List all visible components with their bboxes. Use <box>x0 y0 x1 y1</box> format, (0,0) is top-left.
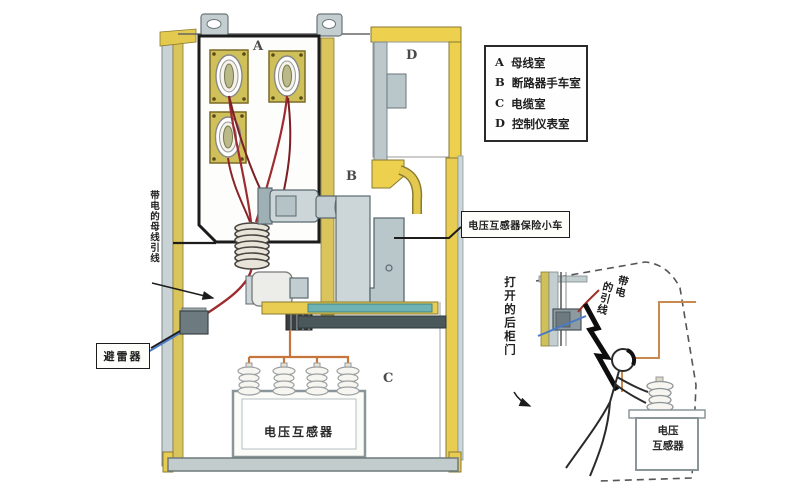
voltage-transformer-label: 电压互感器 <box>246 423 352 440</box>
legend-item-c: C电缆室 <box>495 96 577 112</box>
vt-fuse-cart-callout: 电压互感器保险小车 <box>461 211 570 238</box>
inset-voltage-transformer-label: 电压 互感器 <box>640 424 696 454</box>
opened-rear-door-label: 打开的后柜门 <box>502 276 518 396</box>
arrester-callout: 避雷器 <box>96 343 150 369</box>
compartment-a-letter: A <box>253 39 263 54</box>
legend-item-d: D控制仪表室 <box>495 116 577 132</box>
live-busbar-lead-label: 带电的母线引线 <box>146 190 160 294</box>
partition-a-b <box>321 38 334 315</box>
cabinet-left-wall <box>160 29 196 466</box>
lifting-lug-left <box>201 14 228 36</box>
vt-fuse-cart <box>370 160 417 304</box>
compartment-d-letter: D <box>406 48 417 63</box>
cabinet-right-wall <box>440 156 463 460</box>
lifting-lug-right <box>317 14 342 36</box>
compartment-b-letter: B <box>346 169 357 184</box>
busbar-insulator-2 <box>269 51 305 102</box>
surge-arrester <box>180 308 208 334</box>
handcart-frame <box>336 196 370 304</box>
compartment-c-letter: C <box>383 371 393 386</box>
breaker-lower-pole <box>246 272 308 306</box>
cable-room-wires <box>249 330 349 369</box>
legend-item-b: B断路器手车室 <box>495 75 577 91</box>
legend: A母线室 B断路器手车室 C电缆室 D控制仪表室 <box>484 45 588 142</box>
corrugated-bushing <box>235 223 269 269</box>
legend-item-a: A母线室 <box>495 55 577 71</box>
switchgear-diagram: A母线室 B断路器手车室 C电缆室 D控制仪表室 A B C D 避雷器 电压互… <box>0 0 800 500</box>
busbar-insulator-1 <box>210 50 248 103</box>
